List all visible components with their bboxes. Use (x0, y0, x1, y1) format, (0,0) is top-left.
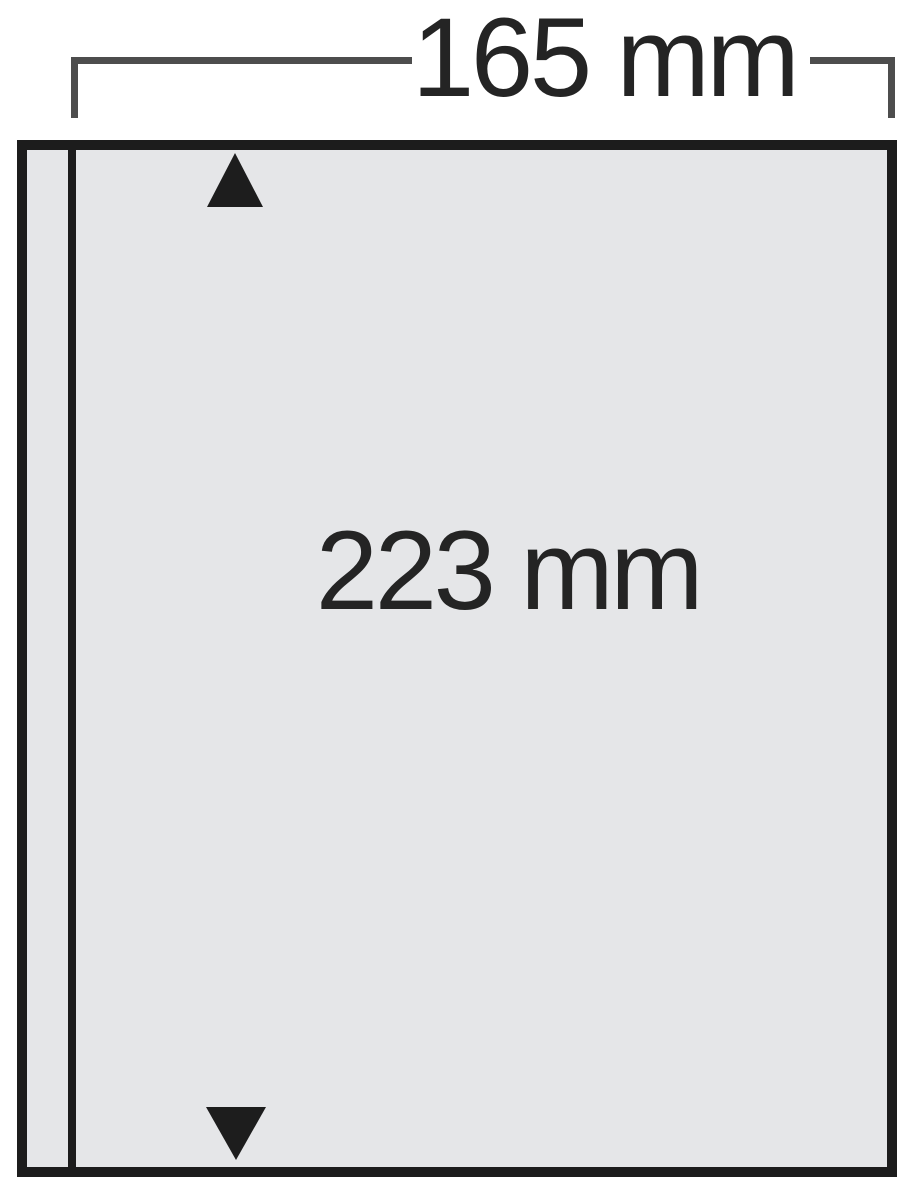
diagram-canvas: 165 mm 223 mm (0, 0, 921, 1198)
width-dimension-label: 165 mm (412, 2, 796, 114)
width-bracket-left-line (71, 57, 412, 64)
height-dimension-label: 223 mm (316, 515, 700, 627)
width-bracket-left-tick (71, 57, 78, 118)
width-bracket-right-tick (888, 57, 895, 118)
album-sheet: 223 mm (17, 140, 897, 1177)
binding-seam-line (68, 150, 76, 1167)
up-triangle-icon (207, 153, 263, 207)
width-bracket-right-line (810, 57, 894, 64)
down-triangle-icon (206, 1107, 266, 1160)
